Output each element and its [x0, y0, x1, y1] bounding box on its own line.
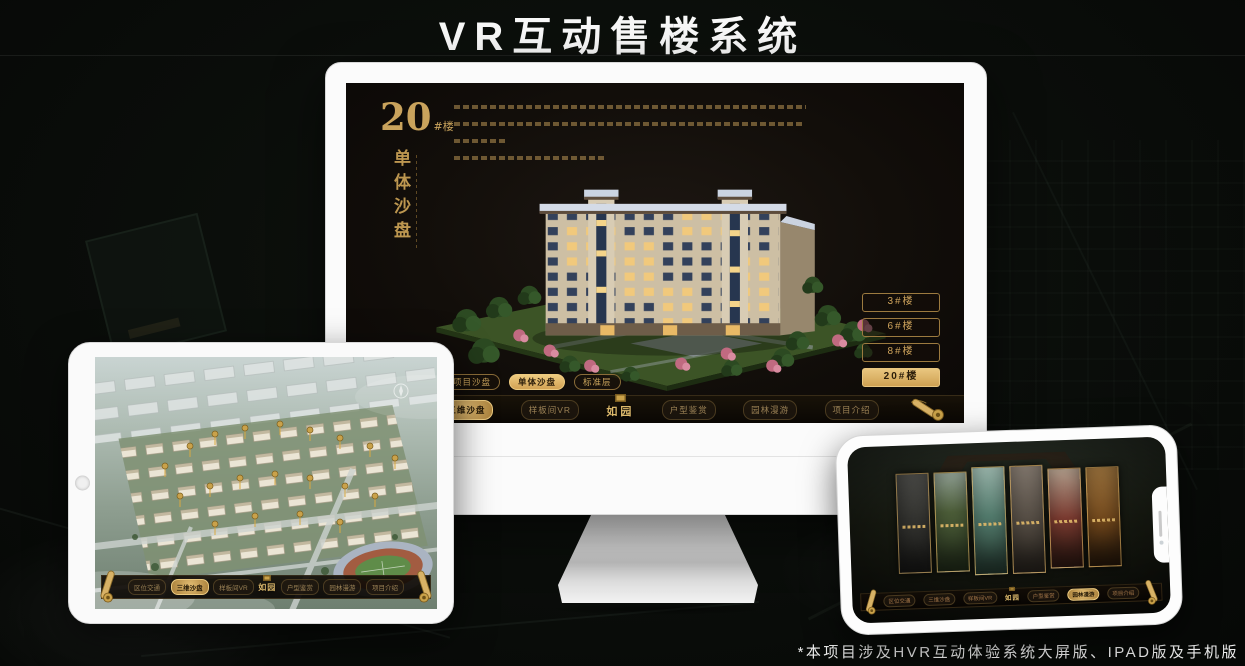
building-unit: #楼	[434, 120, 454, 133]
nav-item-garden-roam[interactable]: 园林漫游	[743, 400, 797, 420]
brand-seal-icon	[263, 575, 271, 581]
poster-canvas: VR互动售楼系统 20#楼 单体沙盘	[0, 0, 1245, 666]
ipad-device: 项目沙盘 单体沙盘 标准层 区位交通 三维沙盘 样板间VR 如园 户型鉴赏 园林…	[68, 342, 454, 624]
brand-logo-text: 如园	[606, 403, 634, 419]
tab-standard-floor[interactable]: 标准层	[574, 374, 621, 390]
ipad-home-button[interactable]	[75, 476, 90, 491]
phone-screen: 区位交通 三维沙盘 样板间VR 如园 户型鉴赏 园林漫游 项目介绍	[847, 437, 1171, 624]
phone-speaker	[1158, 511, 1161, 537]
nav-item-garden-roam[interactable]: 园林漫游	[1067, 588, 1099, 601]
monitor-stand	[558, 513, 758, 603]
floor-button-20[interactable]: 20#楼	[862, 368, 940, 387]
floor-button-6[interactable]: 6#楼	[862, 318, 940, 337]
building-number: 20	[380, 95, 432, 139]
nav-item-location[interactable]: 区位交通	[883, 594, 915, 607]
nav-item-showroom-vr[interactable]: 样板间VR	[963, 591, 998, 604]
floor-button-group: 3#楼 6#楼 8#楼 20#楼	[862, 293, 940, 387]
phone-notch	[1152, 486, 1171, 563]
nav-item-project-intro[interactable]: 项目介绍	[366, 579, 404, 595]
floor-button-3[interactable]: 3#楼	[862, 293, 940, 312]
scroll-icon[interactable]	[862, 587, 881, 616]
nav-item-showroom-vr[interactable]: 样板间VR	[213, 579, 254, 595]
phone-camera	[1159, 541, 1163, 545]
nav-item-floorplan[interactable]: 户型鉴赏	[281, 579, 319, 595]
scroll-icon[interactable]	[906, 396, 952, 423]
scroll-icon[interactable]	[97, 567, 119, 603]
nav-item-project-intro[interactable]: 项目介绍	[1107, 586, 1139, 599]
phone-device: 区位交通 三维沙盘 样板间VR 如园 户型鉴赏 园林漫游 项目介绍	[835, 424, 1184, 636]
ipad-bottom-nav: 区位交通 三维沙盘 样板间VR 如园 户型鉴赏 园林漫游 项目介绍	[101, 575, 431, 599]
nav-item-floorplan[interactable]: 户型鉴赏	[662, 400, 716, 420]
tab-single-sandtable[interactable]: 单体沙盘	[509, 374, 565, 390]
nav-item-location[interactable]: 区位交通	[128, 579, 166, 595]
background-signboard	[85, 213, 227, 359]
brand-logo-text: 如园	[1005, 591, 1020, 602]
description-line	[454, 105, 806, 109]
brand-seal-icon	[1009, 586, 1015, 590]
brand-seal-icon	[615, 394, 626, 402]
nav-item-project-intro[interactable]: 项目介绍	[825, 400, 879, 420]
brand-logo: 如园	[258, 575, 276, 593]
page-title: VR互动售楼系统	[0, 4, 1245, 62]
brand-logo: 如园	[606, 394, 634, 419]
description-line	[454, 122, 802, 126]
floor-button-8[interactable]: 8#楼	[862, 343, 940, 362]
monitor-stand-shadow	[545, 603, 771, 615]
nav-item-floorplan[interactable]: 户型鉴赏	[1027, 589, 1059, 602]
nav-item-garden-roam[interactable]: 园林漫游	[323, 579, 361, 595]
sandtable-mode-tabs: 项目沙盘 单体沙盘 标准层	[444, 374, 621, 390]
background-grid	[983, 140, 1245, 470]
building-3d-model[interactable]	[426, 133, 896, 391]
nav-item-3d-sandtable[interactable]: 三维沙盘	[171, 579, 209, 595]
building-subtitle: 单体沙盘	[388, 149, 413, 245]
community-aerial-map[interactable]	[95, 357, 437, 609]
ipad-screen: 项目沙盘 单体沙盘 标准层 区位交通 三维沙盘 样板间VR 如园 户型鉴赏 园林…	[95, 357, 437, 609]
scroll-icon[interactable]	[413, 567, 435, 603]
brand-logo: 如园	[1005, 586, 1021, 602]
nav-item-showroom-vr[interactable]: 样板间VR	[521, 400, 579, 420]
nav-item-3d-sandtable[interactable]: 三维沙盘	[923, 593, 955, 606]
subtitle-rule	[416, 155, 417, 251]
scroll-icon[interactable]	[1141, 576, 1161, 605]
brand-logo-text: 如园	[258, 582, 276, 593]
footnote: *本项目涉及HVR互动体验系统大屏版、IPAD版及手机版	[798, 641, 1239, 662]
